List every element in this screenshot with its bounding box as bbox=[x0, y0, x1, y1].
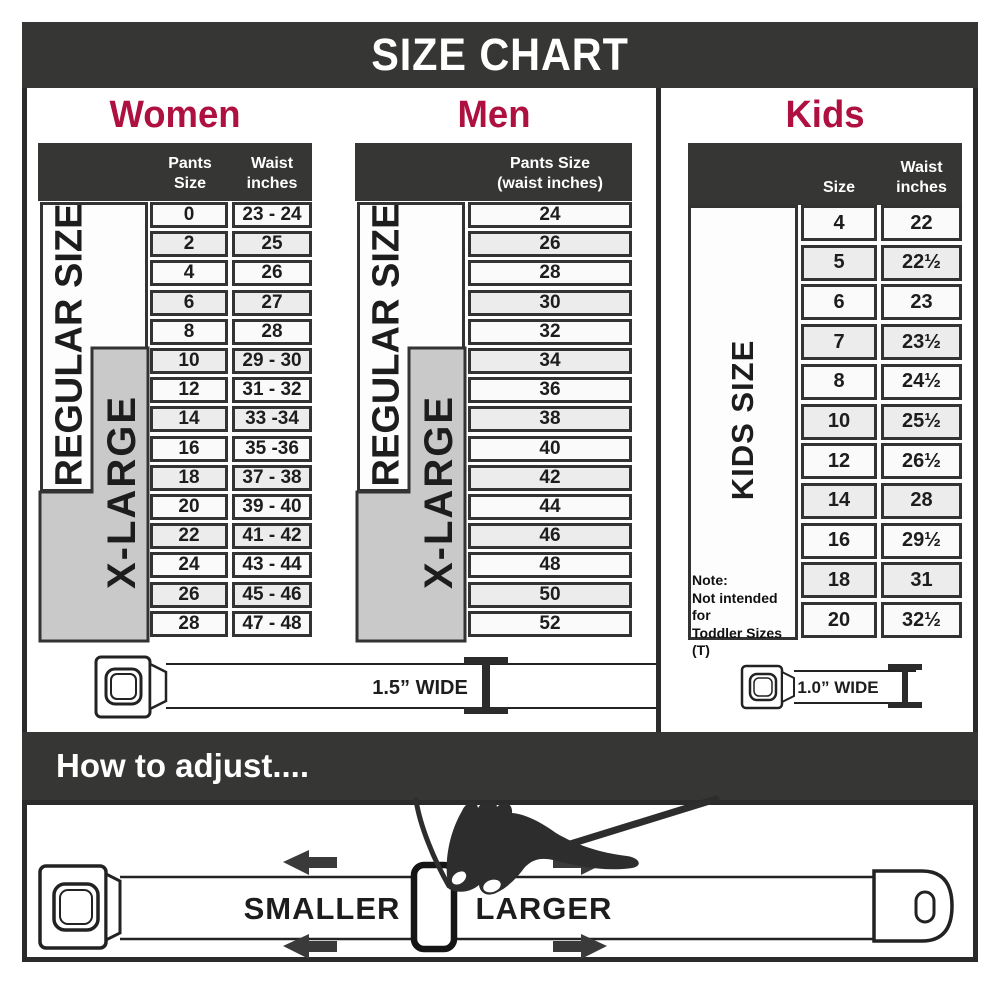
men-col-header-line1: Pants Size bbox=[468, 154, 632, 174]
table-cell: 18 bbox=[150, 465, 228, 491]
table-cell: 25½ bbox=[881, 404, 962, 440]
table-cell: 42 bbox=[468, 465, 632, 491]
kids-col1-header-text: Size bbox=[801, 178, 877, 198]
table-cell: 44 bbox=[468, 494, 632, 520]
size-chart-page: SIZE CHART Women Men Kids Pants Size Wai… bbox=[0, 0, 1000, 1000]
page-title: SIZE CHART bbox=[371, 29, 629, 81]
table-cell: 28 bbox=[468, 260, 632, 286]
table-cell: 10 bbox=[801, 404, 877, 440]
table-cell: 26½ bbox=[881, 443, 962, 479]
table-cell: 28 bbox=[150, 611, 228, 637]
table-cell: 41 - 42 bbox=[232, 523, 312, 549]
table-cell: 35 -36 bbox=[232, 436, 312, 462]
table-cell: 38 bbox=[468, 406, 632, 432]
table-cell: 50 bbox=[468, 582, 632, 608]
table-cell: 8 bbox=[801, 364, 877, 400]
adjust-illustration-panel bbox=[22, 800, 978, 962]
table-cell: 34 bbox=[468, 348, 632, 374]
table-cell: 29 - 30 bbox=[232, 348, 312, 374]
kids-heading: Kids bbox=[729, 94, 921, 138]
table-cell: 23 - 24 bbox=[232, 202, 312, 228]
women-col1-header-text: Pants Size bbox=[150, 154, 230, 194]
table-cell: 20 bbox=[150, 494, 228, 520]
table-cell: 31 - 32 bbox=[232, 377, 312, 403]
table-cell: 14 bbox=[150, 406, 228, 432]
table-cell: 26 bbox=[468, 231, 632, 257]
table-cell: 24 bbox=[150, 552, 228, 578]
table-cell: 16 bbox=[801, 523, 877, 559]
table-cell: 25 bbox=[232, 231, 312, 257]
table-cell: 16 bbox=[150, 436, 228, 462]
table-cell: 43 - 44 bbox=[232, 552, 312, 578]
table-cell: 37 - 38 bbox=[232, 465, 312, 491]
table-cell: 27 bbox=[232, 290, 312, 316]
men-col-header: Pants Size (waist inches) bbox=[468, 143, 632, 201]
table-cell: 14 bbox=[801, 483, 877, 519]
adjust-heading: How to adjust.... bbox=[22, 747, 309, 785]
men-heading: Men bbox=[398, 94, 590, 138]
table-cell: 28 bbox=[881, 483, 962, 519]
kids-note-line2: Not intended for bbox=[692, 590, 796, 625]
table-cell: 30 bbox=[468, 290, 632, 316]
table-cell: 28 bbox=[232, 319, 312, 345]
table-cell: 48 bbox=[468, 552, 632, 578]
kids-note-line3: Toddler Sizes (T) bbox=[692, 625, 796, 660]
table-cell: 6 bbox=[150, 290, 228, 316]
men-col-header-line2: (waist inches) bbox=[468, 174, 632, 194]
table-cell: 24½ bbox=[881, 364, 962, 400]
kids-col2-header-line1: Waist bbox=[881, 158, 962, 178]
table-cell: 26 bbox=[232, 260, 312, 286]
men-regular-size-box bbox=[357, 202, 465, 492]
table-cell: 29½ bbox=[881, 523, 962, 559]
table-cell: 24 bbox=[468, 202, 632, 228]
table-cell: 7 bbox=[801, 324, 877, 360]
kids-col2-header: Waist inches bbox=[881, 143, 962, 205]
table-cell: 32 bbox=[468, 319, 632, 345]
women-col1-header: Pants Size bbox=[150, 143, 230, 201]
table-cell: 32½ bbox=[881, 602, 962, 638]
table-cell: 22½ bbox=[881, 245, 962, 281]
kids-col1-header: Size bbox=[801, 143, 877, 205]
table-cell: 0 bbox=[150, 202, 228, 228]
table-cell: 46 bbox=[468, 523, 632, 549]
table-cell: 4 bbox=[801, 205, 877, 241]
table-cell: 45 - 46 bbox=[232, 582, 312, 608]
table-cell: 31 bbox=[881, 562, 962, 598]
women-col2-header: Waist inches bbox=[232, 143, 312, 201]
kids-note: Note: Not intended for Toddler Sizes (T) bbox=[692, 572, 796, 660]
table-cell: 20 bbox=[801, 602, 877, 638]
table-cell: 47 - 48 bbox=[232, 611, 312, 637]
table-cell: 8 bbox=[150, 319, 228, 345]
kids-note-line1: Note: bbox=[692, 572, 796, 590]
women-heading: Women bbox=[79, 94, 271, 138]
title-bar: SIZE CHART bbox=[22, 22, 978, 88]
table-cell: 22 bbox=[881, 205, 962, 241]
table-cell: 12 bbox=[150, 377, 228, 403]
kids-col2-header-line2: inches bbox=[881, 178, 962, 198]
table-cell: 4 bbox=[150, 260, 228, 286]
women-col2-header-line2: inches bbox=[232, 174, 312, 194]
women-regular-size-box bbox=[40, 202, 148, 492]
table-cell: 22 bbox=[150, 523, 228, 549]
women-col2-header-line1: Waist bbox=[232, 154, 312, 174]
table-cell: 33 -34 bbox=[232, 406, 312, 432]
table-cell: 23½ bbox=[881, 324, 962, 360]
table-cell: 6 bbox=[801, 284, 877, 320]
table-cell: 5 bbox=[801, 245, 877, 281]
table-cell: 18 bbox=[801, 562, 877, 598]
table-cell: 39 - 40 bbox=[232, 494, 312, 520]
table-cell: 23 bbox=[881, 284, 962, 320]
table-cell: 26 bbox=[150, 582, 228, 608]
table-cell: 36 bbox=[468, 377, 632, 403]
table-cell: 12 bbox=[801, 443, 877, 479]
table-cell: 40 bbox=[468, 436, 632, 462]
panel-divider bbox=[656, 88, 661, 732]
adjust-section-bar: How to adjust.... bbox=[22, 732, 978, 800]
table-cell: 10 bbox=[150, 348, 228, 374]
table-cell: 52 bbox=[468, 611, 632, 637]
table-cell: 2 bbox=[150, 231, 228, 257]
